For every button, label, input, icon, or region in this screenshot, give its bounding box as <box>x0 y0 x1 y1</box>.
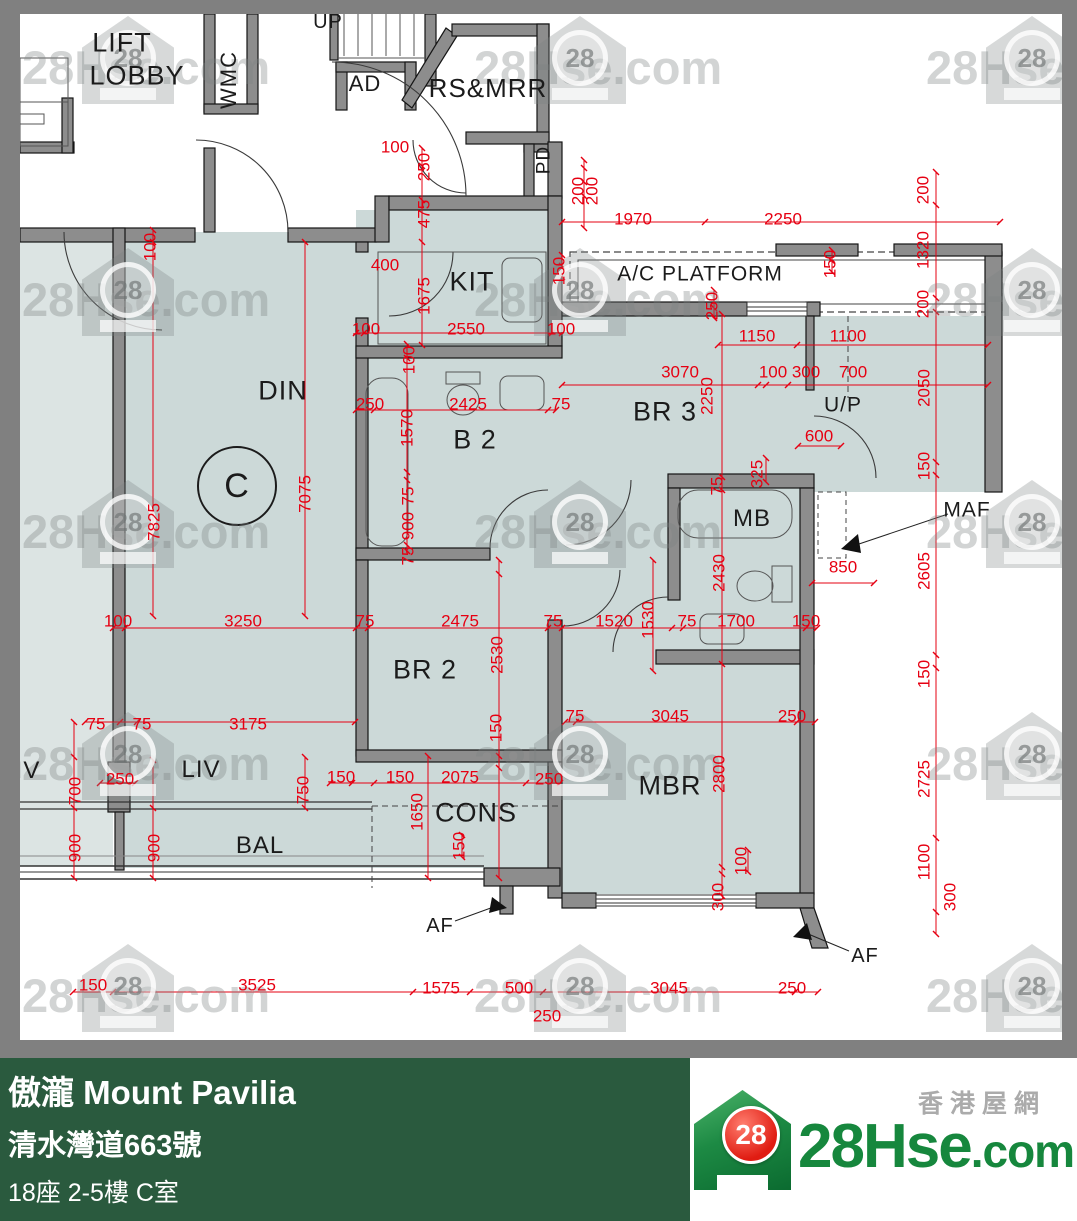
dimension-label: 75 <box>552 396 571 413</box>
room-label: UP <box>313 12 343 32</box>
dimension-label: 2050 <box>916 369 933 407</box>
unit-info: 18座 2-5樓 C室 <box>8 1173 690 1209</box>
dimension-label: 500 <box>505 980 533 997</box>
room-label: AF <box>851 946 879 966</box>
dimension-label: 300 <box>792 364 820 381</box>
dimension-label: 3045 <box>650 980 688 997</box>
dimension-label: 150 <box>386 769 414 786</box>
room-label: DIN <box>258 378 308 405</box>
dimension-label: 100 <box>352 321 380 338</box>
dimension-label: 75 <box>544 613 563 630</box>
dimension-label: 2250 <box>699 377 716 415</box>
dimension-label: 2605 <box>916 552 933 590</box>
dimension-label: 900 <box>400 512 417 540</box>
room-label: LIFT <box>92 30 152 57</box>
dimension-label: 7075 <box>297 475 314 513</box>
dimension-label: 75 <box>356 613 375 630</box>
dimension-label: 150 <box>79 977 107 994</box>
dimension-label: 75 <box>87 716 106 733</box>
dimension-label: 900 <box>146 834 163 862</box>
room-label: LOBBY <box>89 63 184 90</box>
dimension-label: 2550 <box>447 321 485 338</box>
dimension-label: 3525 <box>238 977 276 994</box>
dimension-label: 250 <box>356 396 384 413</box>
room-label: BR 2 <box>393 657 457 684</box>
dimension-label: 7825 <box>146 503 163 541</box>
estate-name: 傲瀧 Mount Pavilia <box>8 1066 690 1114</box>
dimension-label: 75 <box>678 613 697 630</box>
room-label: LIV <box>181 758 220 782</box>
dimension-label: 150 <box>451 832 468 860</box>
dimension-label: 900 <box>67 834 84 862</box>
dimension-label: 200 <box>915 176 932 204</box>
dimension-label: 1100 <box>916 844 933 881</box>
label-layer: LIFTLOBBYUPWMCADRS&MRRPDKITA/C PLATFORMD… <box>0 0 1077 1221</box>
site-tagline: 香港屋網 <box>918 1084 1046 1120</box>
room-label: PD <box>535 146 554 174</box>
dimension-label: 250 <box>106 771 134 788</box>
dimension-label: 75 <box>709 477 726 496</box>
dimension-label: 400 <box>371 257 399 274</box>
dimension-label: 2250 <box>764 211 802 228</box>
dimension-label: 250 <box>778 708 806 725</box>
dimension-label: 2800 <box>711 755 728 793</box>
dimension-label: 1320 <box>915 231 932 269</box>
dimension-label: 600 <box>805 428 833 445</box>
room-label: CONS <box>435 800 517 827</box>
room-label: B 2 <box>453 427 497 454</box>
dimension-label: 1570 <box>399 409 416 447</box>
dimension-label: 150 <box>916 660 933 688</box>
dimension-label: 2075 <box>441 769 479 786</box>
site-logo-text: 28Hse.com <box>798 1116 1074 1178</box>
dimension-label: 100 <box>759 364 787 381</box>
room-label: MB <box>733 507 771 531</box>
dimension-label: 3250 <box>224 613 262 630</box>
dimension-label: 3070 <box>661 364 699 381</box>
dimension-label: 150 <box>916 452 933 480</box>
dimension-label: 700 <box>839 364 867 381</box>
dimension-label: 75 <box>400 487 417 506</box>
dimension-label: 1100 <box>830 328 867 345</box>
room-label: A/C PLATFORM <box>617 264 783 285</box>
room-label: KIT <box>449 269 494 296</box>
dimension-label: 75 <box>133 716 152 733</box>
dimension-label: 1575 <box>422 980 460 997</box>
room-label: WMC <box>218 51 240 109</box>
room-label: MAF <box>943 500 990 521</box>
dimension-label: 75 <box>566 708 585 725</box>
room-label: AF <box>426 916 454 936</box>
dimension-label: 850 <box>829 559 857 576</box>
dimension-label: 100 <box>733 847 750 875</box>
dimension-label: 2430 <box>711 554 728 592</box>
dimension-label: 3045 <box>651 708 689 725</box>
dimension-label: 100 <box>104 613 132 630</box>
dimension-label: 75 <box>400 547 417 566</box>
dimension-label: 100 <box>381 139 409 156</box>
plan-border-right <box>1062 0 1077 1058</box>
dimension-label: 250 <box>778 980 806 997</box>
dimension-label: 325 <box>749 460 766 488</box>
dimension-label: 150 <box>822 250 839 278</box>
plan-border-top <box>0 0 1077 14</box>
logo-main: 28Hse <box>798 1112 971 1181</box>
dimension-label: 100 <box>547 321 575 338</box>
estate-address: 清水灣道663號 <box>8 1122 690 1164</box>
dimension-label: 1970 <box>614 211 652 228</box>
listing-info-panel: 傲瀧 Mount Pavilia 清水灣道663號 18座 2-5樓 C室 90… <box>0 1058 690 1221</box>
dimension-label: 2530 <box>489 636 506 674</box>
dimension-label: 250 <box>416 153 433 181</box>
room-label: BAL <box>236 834 284 858</box>
dimension-label: 700 <box>67 777 84 805</box>
plan-border-bottom <box>0 1040 1077 1058</box>
dimension-label: 250 <box>533 1008 561 1025</box>
logo-suffix: .com <box>971 1125 1074 1177</box>
dimension-label: 1675 <box>416 277 433 315</box>
dimension-label: 100 <box>142 233 159 261</box>
dimension-label: 150 <box>792 613 820 630</box>
footer: 傲瀧 Mount Pavilia 清水灣道663號 18座 2-5樓 C室 90… <box>0 1058 1077 1221</box>
dimension-label: 150 <box>327 769 355 786</box>
plan-border-left <box>0 0 20 1058</box>
dimension-label: 300 <box>710 883 727 911</box>
dimension-label: 2425 <box>449 396 487 413</box>
dimension-label: 150 <box>488 714 505 742</box>
dimension-label: 1520 <box>595 613 633 630</box>
room-label: AD <box>349 73 382 95</box>
dimension-label: 3175 <box>229 716 267 733</box>
site-branding: 28 28Hse.com 香港屋網 <box>690 1058 1077 1221</box>
dimension-label: 1530 <box>640 601 657 639</box>
dimension-label: 150 <box>551 257 568 285</box>
dimension-label: 200 <box>915 290 932 318</box>
room-label: U/P <box>824 395 862 416</box>
room-label: BR 3 <box>633 399 697 426</box>
room-label: C <box>224 469 250 503</box>
dimension-label: 750 <box>295 776 312 804</box>
dimension-label: 1700 <box>717 613 755 630</box>
dimension-label: 475 <box>416 200 433 228</box>
room-label: RS&MRR <box>429 75 548 101</box>
floorplan-page: 28Hse.com2828Hse.com2828Hse.com2828Hse.c… <box>0 0 1077 1221</box>
dimension-label: 250 <box>704 292 721 320</box>
dimension-label: 200 <box>584 177 601 205</box>
dimension-label: 2725 <box>916 760 933 798</box>
28-badge-icon: 28 <box>722 1106 780 1164</box>
room-label: MBR <box>639 773 702 800</box>
dimension-label: 1150 <box>739 328 776 345</box>
dimension-label: 300 <box>942 883 959 911</box>
dimension-label: 250 <box>535 771 563 788</box>
dimension-label: 1650 <box>409 793 426 831</box>
dimension-label: 2475 <box>441 613 479 630</box>
dimension-label: 100 <box>401 346 418 374</box>
